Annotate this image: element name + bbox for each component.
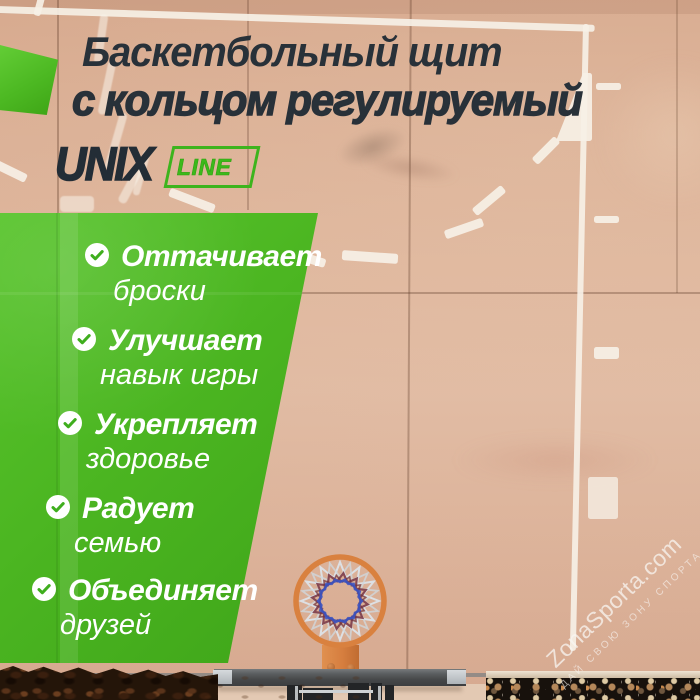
feature-label: Укрепляет	[94, 409, 257, 441]
panel-seam-vertical	[676, 0, 678, 293]
page-title-line1: Баскетбольный щит	[82, 28, 502, 76]
arc-dash	[532, 136, 561, 165]
feature-label: Улучшает	[108, 325, 262, 357]
check-icon	[58, 411, 82, 435]
lane-hash-mark	[594, 347, 619, 359]
lane-hash-mark	[594, 216, 619, 223]
bushes	[0, 663, 218, 700]
feature-label: Объединяет	[68, 575, 258, 607]
court-stain	[420, 430, 690, 490]
feature-label: Оттачивает	[121, 241, 322, 273]
court-light-patch	[580, 40, 700, 230]
feature-detail: друзей	[60, 610, 258, 641]
brand-badge: LINE	[164, 146, 261, 188]
lane-hash-mark	[596, 83, 621, 90]
net-ring-blue	[320, 581, 360, 621]
hoop-rim	[296, 557, 384, 645]
feature-item: Радуетсемью	[46, 493, 194, 559]
twigs	[200, 672, 360, 700]
check-icon	[32, 577, 56, 601]
feature-label: Радует	[82, 493, 194, 525]
brand-badge-label: LINE	[171, 154, 231, 181]
arc-dash	[168, 188, 216, 214]
arc-dash	[342, 250, 399, 264]
arc-dash	[472, 185, 507, 216]
stand-post	[385, 685, 394, 700]
promo-image: Баскетбольный щит с кольцом регулируемый…	[0, 0, 700, 700]
basketball-hoop	[290, 551, 390, 651]
feature-detail: навык игры	[100, 360, 262, 391]
feature-detail: броски	[113, 276, 322, 307]
arc-dash	[0, 158, 28, 183]
brand-logo: UNIX	[55, 136, 152, 191]
arc-dash	[444, 218, 485, 240]
feature-item: Объединяетдрузей	[32, 575, 258, 641]
feature-detail: здоровье	[86, 444, 257, 475]
lane-paint-patch	[588, 477, 618, 519]
feature-item: Улучшаетнавык игры	[72, 325, 262, 391]
check-icon	[72, 327, 96, 351]
check-icon	[85, 243, 109, 267]
check-icon	[46, 495, 70, 519]
stand-leg	[378, 686, 381, 700]
backboard-end-cap	[447, 670, 466, 684]
feature-item: Укрепляетздоровье	[58, 409, 257, 475]
feature-item: Оттачиваетброски	[85, 241, 322, 307]
gravel-strip	[486, 678, 700, 700]
page-title-line2: с кольцом регулируемый	[72, 76, 582, 126]
feature-detail: семью	[74, 528, 194, 559]
net-strands-blue	[318, 580, 362, 623]
net-strands-white	[302, 563, 377, 638]
concrete-patch	[60, 196, 94, 212]
